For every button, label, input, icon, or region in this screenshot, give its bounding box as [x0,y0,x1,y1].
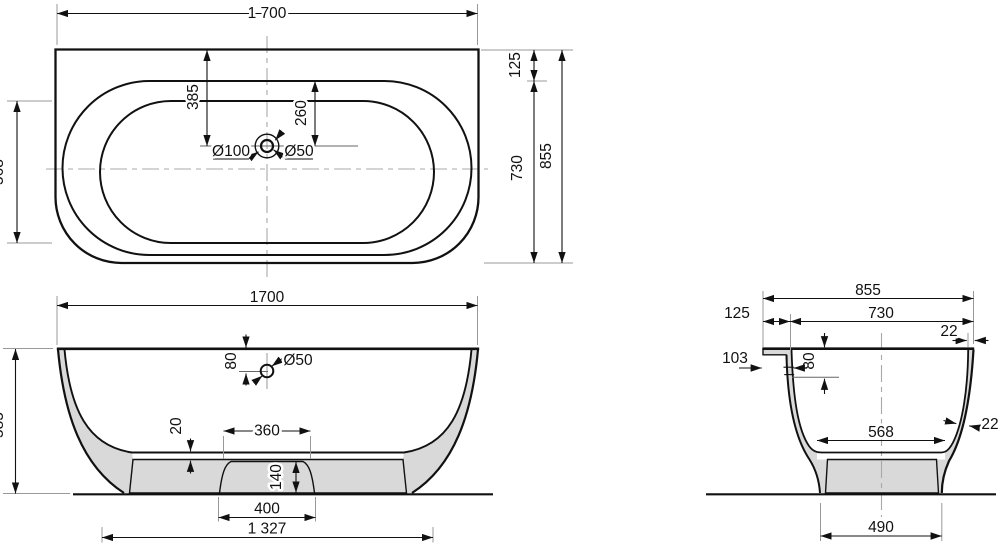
top-view: 1 700 568 385 260 125 730 8 [0,4,573,281]
dim-label-drain-to-back: 385 [185,84,202,110]
dim-label-side-overflow-depth: 80 [801,352,818,370]
dim-label-drain-hole-top: Ø50 [284,143,314,160]
dim-front-base-span: 1 327 [102,521,433,543]
dim-label-front-floor-gap: 20 [168,417,185,435]
dim-label-front-drain-hole: Ø50 [283,352,313,369]
dim-label-side-width: 855 [855,282,881,299]
dim-label-front-height: 585 [0,412,7,438]
dim-label-side-flange-depth: 103 [722,350,748,367]
dim-label-front-arch-top: 360 [254,423,280,440]
dim-label-front-base-span: 1 327 [248,521,287,538]
front-view: 1700 585 80 Ø50 20 [0,289,493,543]
dim-front-length: 1700 [57,289,478,345]
dim-label-top-length: 1 700 [248,5,287,22]
dim-label-top-rim-offset: 125 [507,52,524,78]
dim-label-side-basin-width: 568 [868,424,894,441]
dim-label-side-inner-width: 730 [868,305,894,322]
dim-label-top-inner-width: 730 [509,155,526,181]
side-view: 855 125 730 22 80 103 [706,282,999,541]
drawing-canvas: 1 700 568 385 260 125 730 8 [0,0,1000,551]
dim-label-drain-outer: Ø100 [212,143,250,160]
dim-label-front-drain-depth: 80 [223,352,240,370]
dim-label-front-length: 1700 [250,289,285,306]
dim-label-side-foot-span: 490 [868,519,894,536]
dim-label-top-width: 855 [538,143,555,169]
dim-top-basin-width: 568 [0,101,52,243]
side-interior-fill [792,350,969,460]
dim-top-widths: 125 730 855 [481,50,573,263]
dim-front-arch-bottom: 400 [219,497,316,522]
front-interior-fill [65,350,472,460]
dim-label-side-wall-lower: 22 [981,416,998,433]
dim-label-top-basin-width: 568 [0,159,7,185]
dim-label-front-arch-height: 140 [268,464,285,490]
dim-side-inner-width: 125 730 [724,305,973,353]
dim-label-side-rim-offset: 125 [724,305,750,322]
dim-label-front-arch-bottom: 400 [254,501,280,518]
dim-label-drain-to-rim: 260 [293,100,310,126]
dim-side-wall-top: 22 [940,323,988,347]
bathtub-technical-drawing: 1 700 568 385 260 125 730 8 [0,0,1000,551]
dim-label-side-wall-top: 22 [940,323,957,340]
